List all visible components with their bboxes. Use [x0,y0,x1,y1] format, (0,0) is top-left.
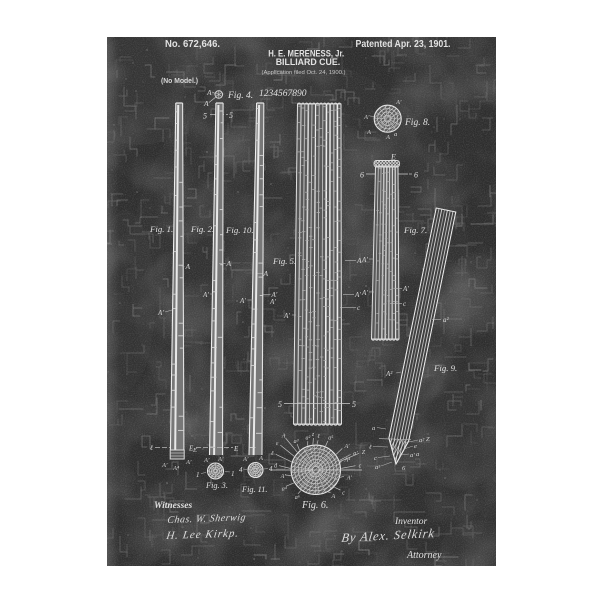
svg-text:e: e [414,443,417,450]
svg-text:A′: A′ [280,474,287,480]
svg-text:A′: A′ [185,459,192,466]
svg-text:Fig. 8.: Fig. 8. [404,118,430,128]
svg-text:(Application filed Oct. 24, 19: (Application filed Oct. 24, 1900.) [262,70,346,76]
svg-text:4: 4 [239,466,243,474]
svg-text:A': A' [354,291,361,299]
svg-text:E: E [233,445,239,453]
svg-text:Fig. 2.: Fig. 2. [190,224,214,234]
svg-text:a²: a² [443,316,450,324]
svg-text:a³: a³ [294,439,299,445]
svg-text:c: c [374,455,377,462]
svg-text:A': A' [239,297,246,305]
svg-text:a²: a² [306,435,311,441]
svg-text:A⁴: A⁴ [172,465,180,472]
svg-text:5: 5 [352,400,356,409]
svg-text:A⁴: A⁴ [344,458,351,464]
svg-text:a: a [394,131,397,138]
svg-text:E: E [390,153,396,162]
svg-text:1: 1 [231,470,235,478]
svg-text:A′: A′ [161,462,168,469]
svg-text:A': A' [283,312,290,320]
svg-text:A²: A² [385,370,393,378]
svg-text:Fig. 4.: Fig. 4. [227,91,253,101]
svg-text:(No Model.): (No Model.) [161,78,198,85]
svg-text:A: A [331,494,336,500]
svg-text:4: 4 [269,465,273,473]
svg-text:Fig. 3.: Fig. 3. [205,481,228,490]
svg-text:A′: A′ [395,99,402,106]
svg-text:5: 5 [203,112,207,121]
svg-text:Fig. 7.: Fig. 7. [403,225,427,235]
svg-text:A: A [385,134,390,141]
svg-text:a: a [372,425,375,432]
svg-text:A: A [206,88,212,97]
svg-text:A′: A′ [217,456,224,463]
svg-text:c: c [359,464,362,470]
svg-text:A′: A′ [346,476,353,482]
svg-text:BILLIARD CUE.: BILLIARD CUE. [276,57,341,68]
svg-text:Fig. 5.: Fig. 5. [272,256,296,266]
svg-text:5: 5 [278,400,282,409]
svg-text:c: c [342,491,345,497]
svg-text:A: A [281,433,286,439]
svg-text:A: A [366,129,371,136]
svg-text:a⁵: a⁵ [375,464,381,471]
svg-text:ℓ: ℓ [368,444,372,451]
svg-text:Fig. 6.: Fig. 6. [301,500,328,511]
svg-text:Attorney: Attorney [406,550,442,561]
svg-text:A′: A′ [203,457,210,464]
svg-text:a⁶: a⁶ [295,495,300,501]
svg-text:Patented Apr. 23, 1901.: Patented Apr. 23, 1901. [356,39,451,50]
svg-text:Inventor: Inventor [394,517,427,527]
svg-text:Witnesses: Witnesses [154,501,192,511]
svg-text:E: E [192,447,197,454]
svg-text:a′: a′ [410,452,415,459]
svg-text:No. 672,646.: No. 672,646. [165,39,220,50]
svg-text:a⁵: a⁵ [328,435,333,441]
svg-text:A: A [226,259,232,268]
svg-text:A: A [263,269,269,278]
svg-text:ℓ: ℓ [149,444,153,452]
svg-text:A': A' [157,309,164,317]
svg-text:A′: A′ [344,444,351,450]
svg-text:Fig. 10.: Fig. 10. [225,225,254,235]
svg-text:Z: Z [426,436,430,443]
svg-text:A': A' [361,289,368,297]
svg-text:A′: A′ [242,456,249,463]
svg-text:A': A' [269,298,276,306]
svg-text:5: 5 [229,111,233,120]
svg-text:A: A [203,99,209,108]
svg-text:Fig. 11.: Fig. 11. [241,485,267,494]
svg-text:A: A [258,455,263,462]
svg-text:A': A' [202,291,209,299]
svg-text:Fig. 1.: Fig. 1. [149,224,173,234]
svg-text:A: A [185,262,191,271]
svg-text:1: 1 [196,471,200,479]
svg-text:a: a [416,451,419,458]
svg-text:1234567890: 1234567890 [259,89,307,99]
svg-text:A′: A′ [363,114,370,121]
svg-text:6: 6 [360,171,364,180]
svg-text:Fig. 9.: Fig. 9. [433,363,457,373]
svg-text:6: 6 [414,171,418,180]
svg-text:A': A' [361,256,368,264]
svg-text:A': A' [402,285,409,293]
svg-text:a⁴: a⁴ [282,486,287,492]
